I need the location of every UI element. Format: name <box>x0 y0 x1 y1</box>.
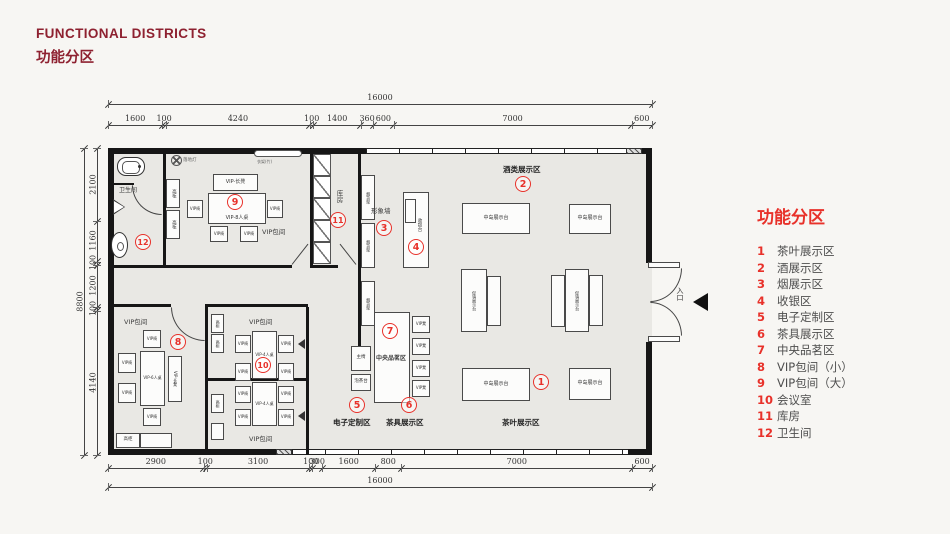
shelf-cell <box>313 220 331 242</box>
legend-item-label: 酒展示区 <box>777 260 823 276</box>
legend-item-number: 8 <box>757 360 777 374</box>
legend-item: 9VIP包间（大） <box>757 375 937 392</box>
furniture-cashier-inner <box>405 199 416 223</box>
dim-label: 600 <box>622 457 662 466</box>
legend-item-number: 7 <box>757 343 777 357</box>
furniture-vip-table-4: VIP-4人桌 <box>252 382 277 426</box>
furniture-vip-stool: VIP凳 <box>412 316 430 333</box>
dim-ext <box>207 464 208 472</box>
legend-item-label: VIP包间（小） <box>777 359 853 375</box>
dim-ext <box>394 121 395 129</box>
furniture-vip-chair: VIP椅 <box>187 200 203 218</box>
furniture-promo-side <box>551 275 565 327</box>
dim-label: 3100 <box>238 457 278 466</box>
furniture-vip-bench: VIP-长凳 <box>168 356 182 402</box>
zone-marker-8: 8 <box>170 334 186 350</box>
entrance-label: 入口 <box>675 287 685 301</box>
furniture-vip-stool: VIP凳 <box>412 338 430 355</box>
dim-ext <box>80 455 88 456</box>
legend-item-label: 卫生间 <box>777 425 812 441</box>
dim-ext <box>93 148 101 149</box>
furniture-vip-chair: VIP椅 <box>235 409 251 426</box>
dim-ext <box>108 464 109 472</box>
zone-marker-5: 5 <box>349 397 365 413</box>
slide: FUNCTIONAL DISTRICTS 功能分区 入口 卫生间 落地灯 衣架(… <box>0 0 950 534</box>
zone-marker-9: 9 <box>227 194 243 210</box>
zone-label-toilet: 卫生间 <box>119 185 137 194</box>
wall-lower-top-b <box>205 304 308 307</box>
dim-ext <box>108 121 109 129</box>
furniture-vip-chair: VIP椅 <box>278 386 294 403</box>
wall-storage-bottom <box>310 265 338 268</box>
entrance-arrow-icon <box>693 293 708 311</box>
dim-label: 7000 <box>497 457 537 466</box>
dim-label: 600 <box>363 114 403 123</box>
page-title-en: FUNCTIONAL DISTRICTS <box>36 26 207 41</box>
room-label-vip8: VIP包间 <box>124 316 147 326</box>
legend-item-label: 茶叶展示区 <box>777 243 835 259</box>
dim-ext <box>80 148 88 149</box>
zone-marker-10: 10 <box>255 357 271 373</box>
dim-label: 8800 <box>76 281 85 321</box>
pier-hatch-top <box>626 148 642 154</box>
legend-item: 3烟展示区 <box>757 276 937 293</box>
dim-label: 16000 <box>360 93 400 102</box>
furniture-promo-display: 促销展示台 <box>461 269 487 332</box>
furniture-island-display: 中岛展示台 <box>462 368 530 401</box>
legend-item-label: 电子定制区 <box>777 309 835 325</box>
dim-label: 16000 <box>360 476 400 485</box>
entrance-door-leaf-bottom <box>648 336 680 342</box>
entrance-door-arc-bottom <box>650 302 682 336</box>
dim-ext <box>652 121 653 129</box>
zone-label-tea: 茶叶展示区 <box>502 417 540 428</box>
furniture-promo-side <box>487 276 501 326</box>
legend-item-number: 3 <box>757 277 777 291</box>
zone-label-wine: 酒类展示区 <box>503 164 541 175</box>
legend-item-number: 11 <box>757 409 777 423</box>
dim-label: 100 <box>89 288 98 328</box>
furniture-main-chair: 主椅 <box>351 346 371 371</box>
dim-ext <box>652 483 653 491</box>
furniture-tea-station: 泡茶台 <box>351 374 371 391</box>
zone-label-image-wall: 形象墙 <box>371 205 391 215</box>
legend-item: 8VIP包间（小） <box>757 359 937 376</box>
legend-item: 12卫生间 <box>757 425 937 442</box>
furniture-vip-stool: VIP凳 <box>412 380 430 397</box>
dim-ext <box>401 464 402 472</box>
shelf-cell <box>313 176 331 198</box>
floor-lamp-icon <box>171 155 182 166</box>
wall-meeting-right <box>306 307 309 455</box>
toilet-icon <box>111 232 128 258</box>
zone-marker-7: 7 <box>382 323 398 339</box>
furniture-cigarette-rack: 烟货架 <box>361 223 375 268</box>
dim-label: 4140 <box>89 362 98 402</box>
legend-item-label: 会议室 <box>777 392 812 408</box>
furniture-vip-chair: VIP椅 <box>118 353 136 373</box>
legend-item-label: 收银区 <box>777 293 812 309</box>
furniture-vip-chair: VIP椅 <box>143 330 161 348</box>
dim-line <box>108 125 652 126</box>
zone-marker-11: 11 <box>330 212 346 228</box>
shelf-cell <box>313 198 331 220</box>
furniture-vip-chair: VIP椅 <box>240 226 258 242</box>
wall-lower-top-a <box>108 304 171 307</box>
zone-marker-2: 2 <box>515 176 531 192</box>
legend-item-label: 中央品茗区 <box>777 342 835 358</box>
bathtub-icon <box>117 157 145 176</box>
furniture-vip-chair: VIP椅 <box>267 200 283 218</box>
wall-vip9-bottom <box>108 265 292 268</box>
wall-outer-right-lower <box>646 342 652 455</box>
furniture-vip-chair: VIP椅 <box>278 409 294 426</box>
legend-item: 4收银区 <box>757 293 937 310</box>
furniture-promo-side <box>589 275 603 326</box>
legend-item-number: 9 <box>757 376 777 390</box>
legend-item-label: 库房 <box>777 408 800 424</box>
furniture-tall-cabinet: 高柜 <box>211 314 224 333</box>
legend-item: 11库房 <box>757 408 937 425</box>
furniture-vip-chair: VIP椅 <box>118 383 136 403</box>
shelf-cell <box>313 242 331 264</box>
dim-line <box>108 468 652 469</box>
window-wall-top <box>366 148 626 154</box>
dim-label: 100 <box>185 457 225 466</box>
zone-marker-3: 3 <box>376 220 392 236</box>
door-wedge-meeting-a <box>298 339 305 349</box>
wall-outer-left <box>108 148 114 455</box>
hanger-rack <box>254 150 302 157</box>
dim-ext <box>108 483 109 491</box>
door-wedge-meeting-b <box>298 411 305 421</box>
zone-marker-4: 4 <box>408 239 424 255</box>
furniture-vip-chair: VIP椅 <box>235 363 251 381</box>
furniture-vip-chair: VIP椅 <box>235 386 251 403</box>
legend-items: 1茶叶展示区2酒展示区3烟展示区4收银区5电子定制区6茶具展示区7中央品茗区8V… <box>757 243 937 441</box>
legend-item: 7中央品茗区 <box>757 342 937 359</box>
zone-label-central-tea: 中央品茗区 <box>376 353 406 362</box>
legend-item: 2酒展示区 <box>757 260 937 277</box>
furniture-cabinet <box>140 433 172 448</box>
furniture-vip-chair: VIP椅 <box>278 335 294 353</box>
furniture-cigarette-rack: 烟货架 <box>361 281 375 326</box>
furniture-vip-chair: VIP椅 <box>143 408 161 426</box>
legend-item-number: 5 <box>757 310 777 324</box>
dim-ext <box>93 455 101 456</box>
dim-ext <box>652 464 653 472</box>
dim-label: 100 <box>144 114 184 123</box>
furniture-promo-display: 促销展示台 <box>565 269 589 332</box>
zone-label-storage: 库房 <box>334 190 344 203</box>
furniture-tall-cabinet: 高柜 <box>166 210 180 239</box>
furniture-island-display: 中岛展示台 <box>569 368 611 400</box>
zone-label-teaware: 茶具展示区 <box>386 417 424 428</box>
legend-item-label: 烟展示区 <box>777 276 823 292</box>
wall-outer-right-upper <box>646 148 652 263</box>
furniture-island-display: 中岛展示台 <box>569 204 611 234</box>
dim-ext <box>93 311 101 312</box>
wall-room8-right <box>205 307 208 455</box>
furniture-vip-bench: VIP-长凳 <box>213 174 258 191</box>
dim-ext <box>652 100 653 108</box>
legend-item-number: 6 <box>757 327 777 341</box>
dim-label: 4240 <box>218 114 258 123</box>
dim-label: 2100 <box>89 164 98 204</box>
room-label-meeting-a: VIP包间 <box>249 316 272 326</box>
window-wall-bottom <box>292 449 628 455</box>
dim-line <box>108 104 652 105</box>
furniture-vip-table-6: VIP-6人桌 <box>140 351 165 406</box>
furniture-vip-stool: VIP凳 <box>412 360 430 377</box>
shelf-cell <box>313 154 331 176</box>
dim-ext <box>108 100 109 108</box>
legend-item-number: 12 <box>757 426 777 440</box>
furniture-vip-chair: VIP椅 <box>210 226 228 242</box>
furniture-tall-cabinet: 高柜 <box>211 334 224 353</box>
furniture-island-display: 中岛展示台 <box>462 203 530 234</box>
zone-marker-12: 12 <box>135 234 151 250</box>
page-title-zh: 功能分区 <box>36 46 94 67</box>
zone-marker-6: 6 <box>401 397 417 413</box>
dim-ext <box>322 464 323 472</box>
legend-item-number: 1 <box>757 244 777 258</box>
legend-item: 10会议室 <box>757 392 937 409</box>
dim-label: 1600 <box>329 457 369 466</box>
legend-item: 5电子定制区 <box>757 309 937 326</box>
furniture-tall-cabinet: 高柜 <box>211 394 224 413</box>
dim-line <box>108 487 652 488</box>
pier-hatch-bottom <box>276 449 292 455</box>
legend-item: 6茶具展示区 <box>757 326 937 343</box>
furniture-vip-chair: VIP椅 <box>278 363 294 381</box>
legend-item-label: VIP包间（大） <box>777 375 853 391</box>
dim-ext <box>166 121 167 129</box>
zone-marker-1: 1 <box>533 374 549 390</box>
hanger-rack-label: 衣架(竹) <box>257 159 272 165</box>
floor-lamp-label: 落地灯 <box>183 157 197 163</box>
room-label-vip9: VIP包间 <box>262 226 285 236</box>
legend: 功能分区 1茶叶展示区2酒展示区3烟展示区4收银区5电子定制区6茶具展示区7中央… <box>757 203 937 441</box>
furniture-cashier-label: 收银台 <box>416 218 422 232</box>
furniture-tall-cabinet: 高柜 <box>116 433 140 448</box>
zone-label-e-custom: 电子定制区 <box>333 417 371 428</box>
furniture-tall-cabinet: 高柜 <box>166 179 180 208</box>
legend-title: 功能分区 <box>757 203 937 228</box>
furniture-vip-chair: VIP椅 <box>235 335 251 353</box>
dim-label: 7000 <box>493 114 533 123</box>
room-label-meeting-b: VIP包间 <box>249 433 272 443</box>
legend-item-number: 4 <box>757 294 777 308</box>
dim-label: 2900 <box>136 457 176 466</box>
legend-item-number: 2 <box>757 261 777 275</box>
furniture-cabinet <box>211 423 224 440</box>
dim-ext <box>313 121 314 129</box>
legend-item-number: 10 <box>757 393 777 407</box>
legend-item: 1茶叶展示区 <box>757 243 937 260</box>
legend-item-label: 茶具展示区 <box>777 326 835 342</box>
